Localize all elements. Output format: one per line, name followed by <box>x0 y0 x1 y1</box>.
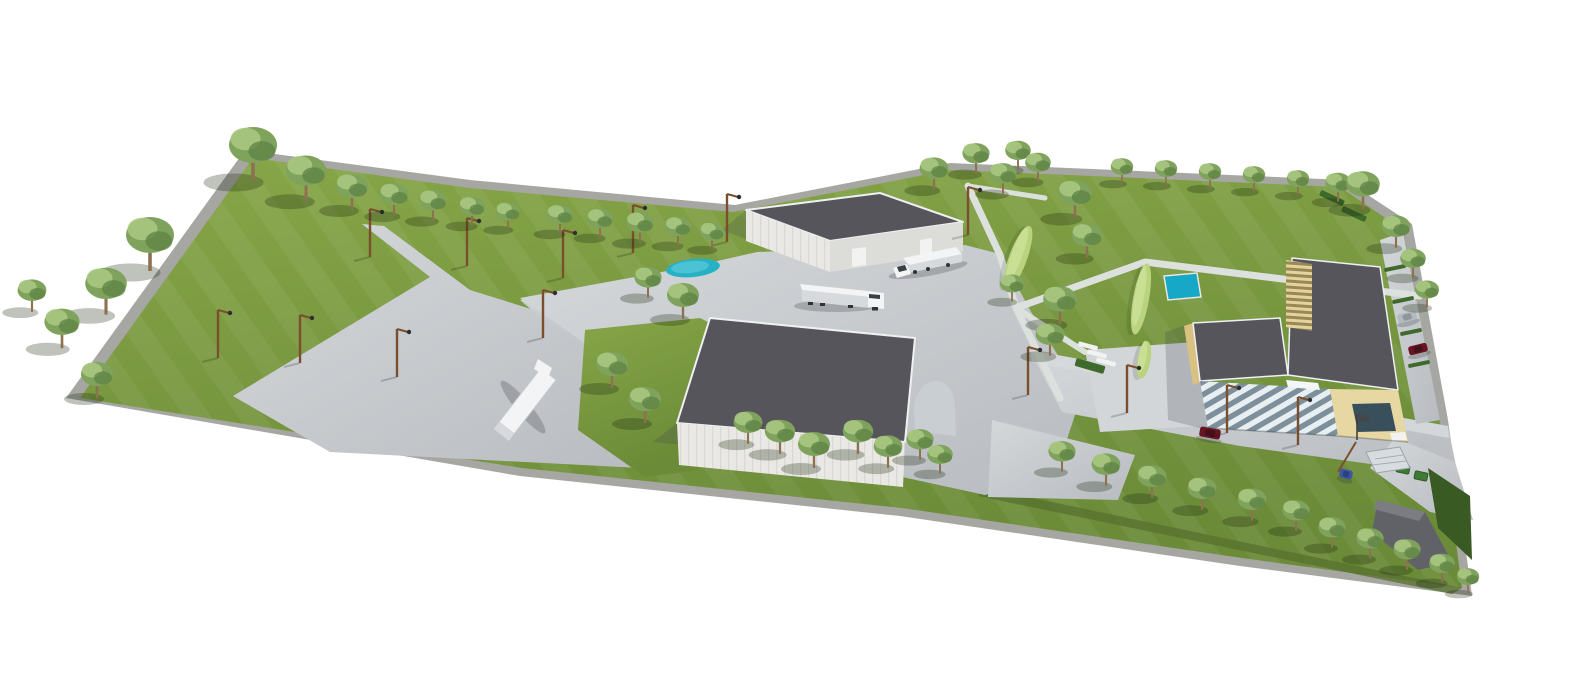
office-roof-low <box>1193 318 1288 381</box>
truck-wheel <box>913 270 917 274</box>
light-pole-head <box>407 330 411 334</box>
light-pole-head <box>737 195 741 199</box>
truck-wheel <box>926 267 930 271</box>
light-pole-head <box>573 231 577 235</box>
truck-wheel <box>946 263 950 267</box>
light-pole-head <box>1137 366 1141 370</box>
office-door-white <box>1390 432 1407 441</box>
truck-wheel <box>872 307 878 311</box>
light-pole-head <box>1237 386 1241 390</box>
site-render-canvas <box>0 0 1588 687</box>
tree <box>2 279 46 318</box>
light-pole-head <box>228 311 232 315</box>
light-pole-head <box>643 206 647 210</box>
light-pole-head <box>310 316 314 320</box>
warehouse-door <box>852 247 866 267</box>
warehouse-2-roof <box>677 318 915 442</box>
site-render: 3D aerial rendering of an industrial cam… <box>0 0 1588 687</box>
truck-wheel <box>820 303 825 306</box>
square-pool <box>1164 273 1201 300</box>
truck-wheel <box>848 305 853 308</box>
truck-wheel <box>808 302 813 305</box>
light-pole-head <box>1308 398 1312 402</box>
office-tower-louvers <box>1286 260 1312 331</box>
light-pole-head <box>477 219 481 223</box>
truck-cab <box>868 291 884 309</box>
light-pole-head <box>553 291 557 295</box>
